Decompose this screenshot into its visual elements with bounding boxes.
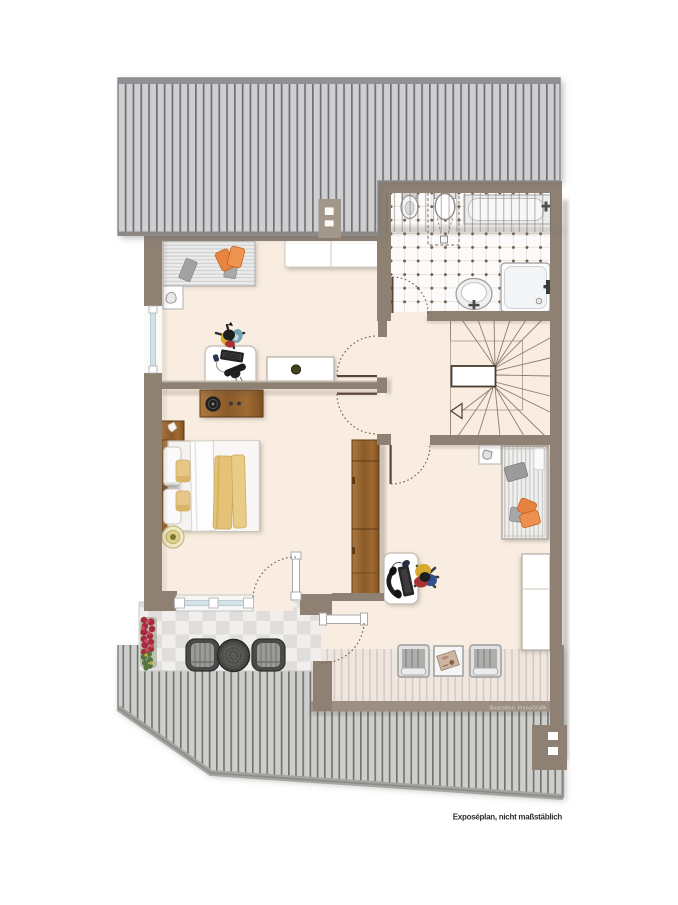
svg-text:Exposéplan, nicht maßstäblich: Exposéplan, nicht maßstäblich (453, 813, 563, 822)
svg-text:Illustration: ImmoGrafik: Illustration: ImmoGrafik (489, 706, 547, 712)
